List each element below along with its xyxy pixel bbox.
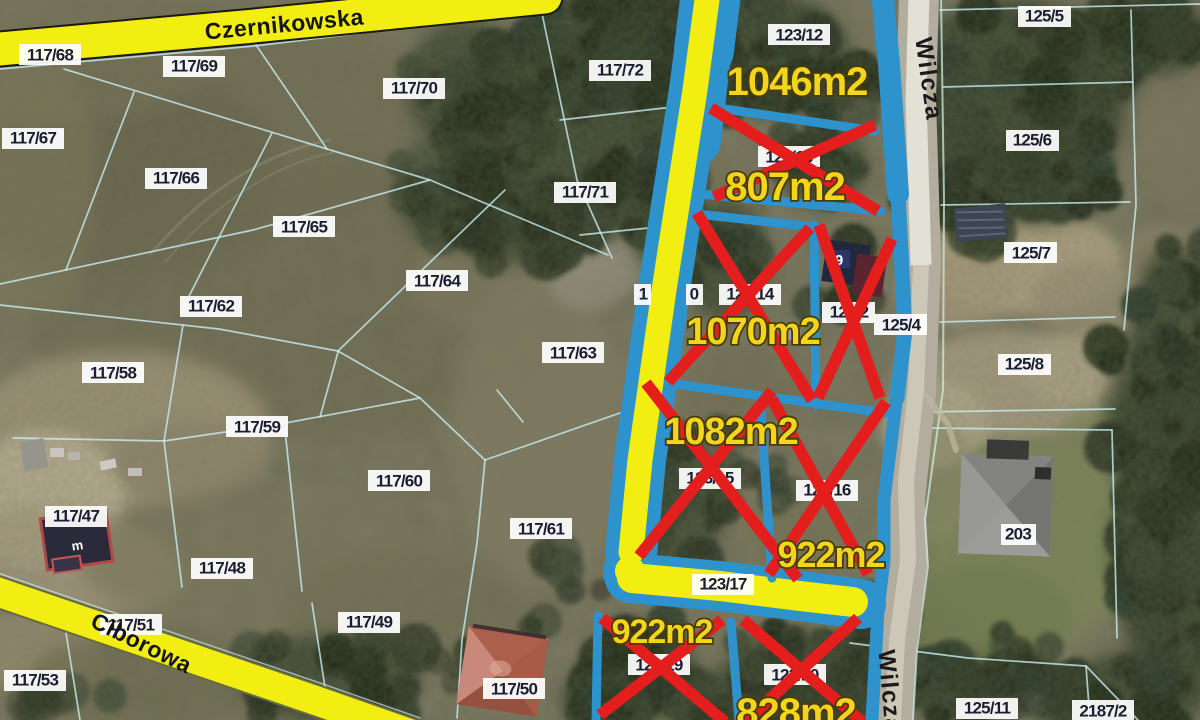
svg-text:125/5: 125/5: [1025, 7, 1064, 26]
svg-text:2187/2: 2187/2: [1079, 702, 1127, 720]
svg-text:807m2: 807m2: [725, 165, 845, 209]
svg-text:117/66: 117/66: [153, 169, 200, 188]
svg-text:117/64: 117/64: [414, 272, 462, 291]
svg-text:117/69: 117/69: [171, 57, 218, 76]
svg-text:m: m: [71, 537, 85, 553]
svg-text:1: 1: [639, 285, 648, 304]
svg-text:123/17: 123/17: [699, 575, 747, 594]
svg-text:117/53: 117/53: [12, 671, 59, 690]
svg-text:125/11: 125/11: [964, 699, 1011, 718]
svg-text:125/8: 125/8: [1005, 355, 1044, 374]
svg-text:117/47: 117/47: [53, 507, 100, 526]
svg-text:117/58: 117/58: [90, 364, 137, 383]
svg-text:203: 203: [1005, 525, 1031, 544]
svg-text:117/63: 117/63: [550, 344, 597, 363]
svg-text:117/61: 117/61: [518, 520, 565, 539]
svg-text:117/68: 117/68: [27, 46, 74, 65]
svg-text:125/4: 125/4: [882, 316, 922, 335]
svg-text:922m2: 922m2: [777, 534, 884, 575]
svg-text:117/49: 117/49: [346, 613, 393, 632]
svg-text:117/50: 117/50: [491, 680, 538, 699]
svg-text:125/6: 125/6: [1013, 131, 1052, 150]
svg-text:123/12: 123/12: [775, 26, 823, 45]
svg-text:117/59: 117/59: [234, 418, 281, 437]
svg-text:117/62: 117/62: [188, 297, 235, 316]
svg-text:117/70: 117/70: [391, 79, 438, 98]
svg-text:0: 0: [690, 285, 699, 304]
svg-text:117/72: 117/72: [597, 61, 644, 80]
svg-text:117/67: 117/67: [10, 129, 57, 148]
svg-text:117/65: 117/65: [281, 218, 328, 237]
svg-text:125/7: 125/7: [1012, 244, 1051, 263]
svg-text:117/48: 117/48: [199, 559, 246, 578]
svg-text:1046m2: 1046m2: [727, 60, 868, 104]
svg-text:1070m2: 1070m2: [686, 311, 819, 353]
svg-text:828m2: 828m2: [736, 691, 856, 720]
svg-text:1082m2: 1082m2: [664, 411, 797, 453]
svg-text:922m2: 922m2: [612, 613, 713, 651]
svg-text:117/60: 117/60: [376, 472, 423, 491]
svg-text:117/71: 117/71: [562, 183, 609, 202]
